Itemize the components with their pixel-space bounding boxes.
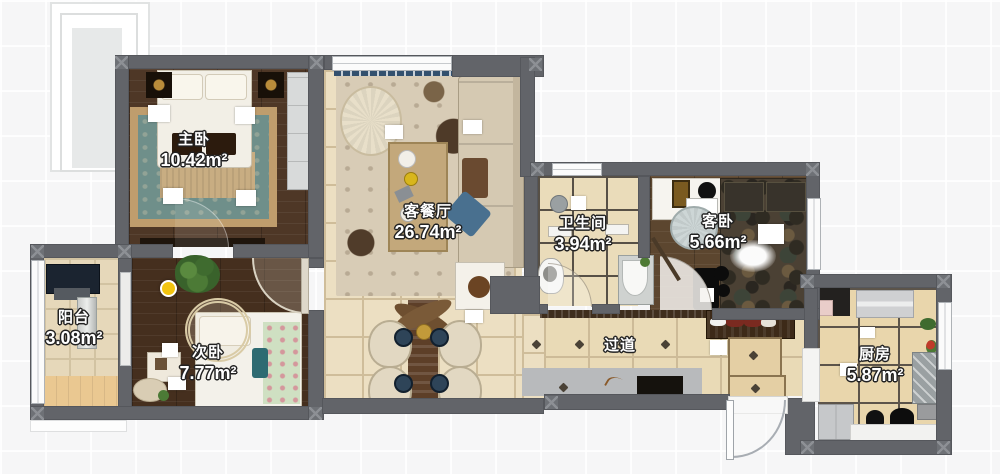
- master-nightstand-right[interactable]: [258, 72, 284, 98]
- kitchen-plant: [920, 318, 936, 330]
- coffee-table-plate: [398, 150, 416, 168]
- exterior-window-sill: [30, 420, 127, 432]
- coffee-table-plate: [400, 206, 416, 222]
- basin-plant: [640, 257, 650, 267]
- wall-corner-mark: [310, 56, 323, 69]
- second-bed-floral-blanket: [263, 322, 300, 404]
- wall: [322, 398, 544, 414]
- light-marker: [710, 340, 727, 355]
- guest-bedroom-window: [807, 198, 821, 270]
- balcony-wood-deck: [44, 376, 118, 406]
- wall: [592, 304, 620, 314]
- kitchen-lower-counter[interactable]: [850, 424, 938, 441]
- dining-place-setting: [394, 374, 413, 393]
- living-room-window: [332, 56, 452, 71]
- wall-corner-mark: [115, 56, 128, 69]
- wall-corner-mark: [545, 396, 558, 409]
- dining-place-setting: [394, 328, 413, 347]
- wall-corner-mark: [529, 58, 542, 71]
- wall: [804, 288, 818, 350]
- balcony-sliding-door[interactable]: [120, 272, 131, 366]
- entry-doormat: [637, 376, 683, 395]
- wall: [308, 258, 324, 268]
- potted-plant[interactable]: [175, 255, 220, 293]
- light-marker: [168, 377, 186, 390]
- wall: [30, 244, 132, 258]
- balcony-window: [31, 260, 45, 404]
- master-nightstand-left[interactable]: [146, 72, 172, 98]
- second-bedroom-door-leaf[interactable]: [301, 258, 309, 314]
- wall: [800, 274, 950, 288]
- kitchen-door[interactable]: [802, 348, 820, 402]
- dining-place-setting: [430, 328, 449, 347]
- guest-fan-head: [717, 284, 730, 297]
- wall: [520, 57, 535, 177]
- wall: [30, 406, 322, 420]
- light-marker: [148, 105, 170, 122]
- drying-rack[interactable]: [77, 297, 97, 349]
- entry-door-swing-arc[interactable]: [732, 400, 786, 458]
- wall: [800, 440, 952, 455]
- guest-lamp-glow: [730, 240, 776, 272]
- wall-corner-mark: [937, 275, 950, 288]
- bathroom-shelf-box: [571, 196, 586, 210]
- small-plant: [158, 390, 169, 401]
- wall-corner-mark: [801, 441, 814, 454]
- light-marker: [385, 125, 403, 139]
- shower-head[interactable]: [550, 195, 568, 213]
- wall: [115, 55, 315, 69]
- master-blanket-roll-left: [172, 133, 202, 155]
- wall-corner-mark: [937, 441, 950, 454]
- kitchen-sink-counter[interactable]: [856, 290, 914, 318]
- light-marker: [463, 120, 482, 134]
- light-marker: [162, 343, 178, 357]
- entry-door-leaf[interactable]: [726, 400, 734, 460]
- wall: [308, 55, 324, 258]
- guest-fan-head: [714, 266, 729, 281]
- guest-pillow: [766, 182, 806, 212]
- light-marker: [236, 190, 256, 206]
- bathroom-window: [552, 163, 602, 176]
- floor-plan-canvas: 主卧 10.42m² 客餐厅 26.74m² 卫生间 3.94m² 客卧 5.6…: [0, 0, 1000, 474]
- light-marker: [840, 363, 857, 376]
- wok-lid: [890, 408, 914, 425]
- wall-corner-mark: [31, 245, 44, 258]
- guest-pillow: [724, 182, 764, 212]
- light-marker: [860, 327, 875, 338]
- coffee-table-yellow-bowl: [404, 172, 418, 186]
- refrigerator[interactable]: [818, 404, 854, 440]
- wall-corner-mark: [806, 163, 819, 176]
- master-pillow-right: [205, 74, 247, 100]
- wall: [490, 276, 540, 314]
- wall: [544, 394, 730, 410]
- side-table-planter: [468, 276, 490, 298]
- towel-bar: [605, 224, 629, 235]
- kitchen-window: [938, 302, 952, 370]
- bedside-table-item: [155, 358, 167, 370]
- second-bed-teal-cushion: [252, 348, 268, 378]
- wall: [115, 55, 129, 258]
- bed-canopy-ring: [185, 298, 251, 362]
- towel-bar: [548, 226, 572, 237]
- wall-corner-mark: [801, 275, 814, 288]
- yellow-indicator-dot[interactable]: [160, 280, 177, 297]
- wall-corner-mark: [531, 163, 544, 176]
- wall: [638, 176, 650, 258]
- wall-corner-mark: [31, 407, 44, 420]
- dining-place-setting: [430, 374, 449, 393]
- wall-corner-mark: [309, 407, 322, 420]
- master-blanket-roll-right: [206, 133, 236, 155]
- wall-corner-mark: [118, 245, 131, 258]
- guest-tufted-chair[interactable]: [670, 206, 718, 250]
- light-marker: [235, 107, 255, 124]
- light-marker: [465, 310, 483, 323]
